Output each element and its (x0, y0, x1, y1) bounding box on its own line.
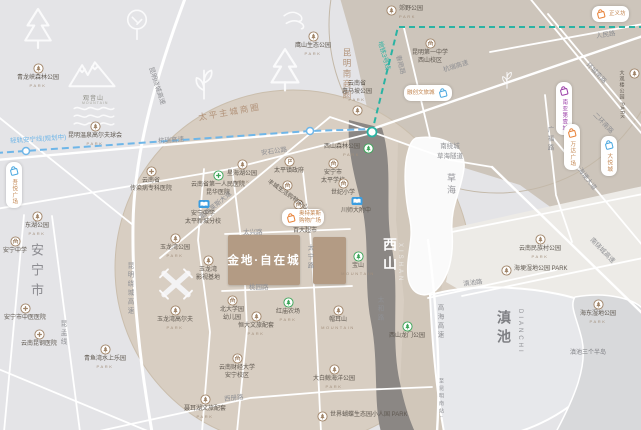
leaf-icon (498, 71, 516, 89)
poi-label: 云南昆钢医院 (21, 341, 57, 349)
poi-label: 云南民族村公园PARK (519, 246, 561, 259)
poi-label: 安宁中学太平新城分校 (185, 211, 221, 227)
pine-icon (20, 6, 56, 51)
poi-label: 红庙农场PARK (276, 309, 300, 322)
park-green-icon (283, 297, 294, 308)
road-label: 桃园路 (249, 281, 269, 291)
shopping-pill: 吾悦广场 (6, 162, 22, 208)
area-label: XISHAN (397, 243, 403, 283)
poi-label: 云南省第一人民医院昆华医院 (191, 182, 245, 198)
park-icon (329, 364, 340, 375)
leaf-icon (188, 68, 220, 100)
civic-icon (338, 178, 349, 189)
park-green-icon (402, 321, 413, 332)
park-icon (90, 121, 101, 132)
poi-label: 太平镇政府 (274, 168, 304, 176)
poi-label: 玉龙湾公园PARK (160, 245, 190, 258)
school-icon (351, 196, 363, 206)
civic-icon (10, 236, 21, 247)
poi-label: 百大超市 (293, 228, 317, 236)
poi-label: 东湖公园PARK (25, 223, 49, 236)
poi-label: 北大学园幼儿园 (220, 307, 244, 323)
poi-label: 青龙峡森林公园PARK (17, 75, 59, 88)
park-icon (593, 299, 604, 310)
park-icon (535, 234, 546, 245)
park-green-icon (363, 143, 374, 154)
park-icon (200, 394, 211, 405)
road-label: 太兴路 (243, 226, 263, 236)
area-label: 滇池 (494, 310, 514, 348)
mtn-icon (68, 58, 116, 88)
area-label: 安宁市 (27, 243, 46, 303)
road-label: 广福路 (544, 126, 554, 153)
shopping-pill: 正义坊 (592, 6, 629, 22)
civic-icon (328, 158, 339, 169)
park-icon (501, 265, 512, 276)
area-label: DIANCHI (517, 309, 523, 355)
project-block-main: 金地·自在城 (228, 235, 300, 285)
civic-icon (227, 295, 238, 306)
hospital-icon (34, 329, 45, 340)
poi-label: 安宁市中医医院 (4, 315, 46, 323)
road-label: 昆孟线 (57, 320, 67, 347)
park-icon (100, 344, 111, 355)
poi-label: 郊野公园PARK (399, 6, 423, 19)
poi-label: 西山森林公园PARK (324, 144, 360, 157)
park-green-icon (353, 251, 364, 262)
shopping-bag-icon (566, 127, 578, 139)
location-map: 金地·自在城 青龙峡森林公园PARK昆明温泉高尔夫球会PARK鹰山生态公园PAR… (0, 0, 641, 430)
poi-label: 安宁中学 (3, 248, 27, 256)
park-icon (170, 305, 181, 316)
road-label: 杭瑞高速 (158, 133, 185, 145)
road-label: 太宁路 (304, 244, 314, 271)
park-icon (170, 233, 181, 244)
shopping-pill: 奥特莱斯购物广场 (282, 209, 324, 226)
wind-icon (282, 6, 308, 32)
poi-label: 昆明第一中学西山校区 (412, 50, 448, 66)
road-label: 高海高速 (434, 304, 444, 340)
hospital-icon (146, 166, 157, 177)
poi-label: 大观楼公园 PARK (618, 70, 625, 120)
poi-label: 恒大文旅配套PARK (238, 323, 274, 336)
road-label: 西册路 (223, 391, 243, 403)
poi-label: 玉龙湾影视基地 (196, 267, 220, 283)
poi-label: 大白鲸海洋公园PARK (313, 376, 355, 389)
shopping-pill: 大悦城 (601, 136, 617, 176)
park-icon (33, 63, 44, 74)
park-icon (308, 31, 319, 42)
park-icon (251, 311, 262, 322)
shopping-pill: 融创文旅城 (404, 85, 452, 101)
poi-label: 鹰山生态公园PARK (295, 43, 331, 56)
shopping-bag-icon (8, 165, 20, 177)
road-label: 南绕城草海隧道 (437, 140, 463, 160)
school-icon (198, 199, 210, 209)
shopping-bag-icon (595, 8, 607, 20)
poi-label: 西山龙门公园 (389, 333, 425, 341)
poi-label: 帽耳山MOUNTAIN (321, 317, 355, 330)
park-icon (629, 68, 640, 79)
poi-label: 聂耳湖文旅配套PARK (184, 406, 226, 419)
poi-label: 世界蝴蝶生态园小人国 PARK (330, 412, 408, 420)
poi-label: 川师大附中 (341, 208, 371, 216)
area-label: MOUNTAIN (82, 101, 108, 105)
poi-label: 云南省惠马坡公园PARK (342, 81, 372, 102)
shopping-pill: 万达广场 (564, 124, 580, 170)
park-icon (203, 255, 214, 266)
civic-icon (425, 38, 436, 49)
shopping-bag-icon (285, 212, 297, 224)
shopping-bag-icon (603, 139, 615, 151)
shopping-bag-icon (437, 87, 449, 99)
park-icon (352, 105, 363, 116)
poi-label: 宝山MOUNTAIN (341, 263, 375, 276)
road-label: 太和路 (374, 296, 384, 323)
gov-icon (284, 156, 295, 167)
poi-label: 玉龙湾高尔夫PARK (157, 317, 193, 330)
park-icon (317, 411, 328, 422)
project-name: 金地·自在城 (227, 252, 300, 268)
park-icon (237, 159, 248, 170)
area-label: 草海 (445, 173, 458, 197)
poi-label: 云南财经大学安宁校区 (219, 365, 255, 381)
park-icon (32, 211, 43, 222)
road-label: 昆明绕城高速 (124, 262, 134, 316)
poi-label: 海东湿地公园PARK (580, 311, 616, 324)
road-label: 至昆明南站↓ (438, 378, 445, 421)
poi-label: 海埂湿地公园 PARK (514, 266, 568, 274)
park-icon (386, 5, 397, 16)
poi-label: 昆明温泉高尔夫球会PARK (68, 133, 122, 146)
area-label: 滇池三个半岛 (570, 347, 606, 356)
windmill-icon (156, 264, 196, 304)
tree-icon (123, 8, 151, 42)
project-block-secondary (313, 237, 346, 284)
park-icon (333, 305, 344, 316)
poi-label: 青鱼湾水上乐园PARK (84, 356, 126, 369)
poi-label: 云南省传染病专科医院 (130, 178, 172, 194)
shopping-bag-icon (558, 85, 570, 97)
civic-icon (232, 353, 243, 364)
hospital-g-icon (213, 170, 224, 181)
hospital-icon (20, 303, 31, 314)
